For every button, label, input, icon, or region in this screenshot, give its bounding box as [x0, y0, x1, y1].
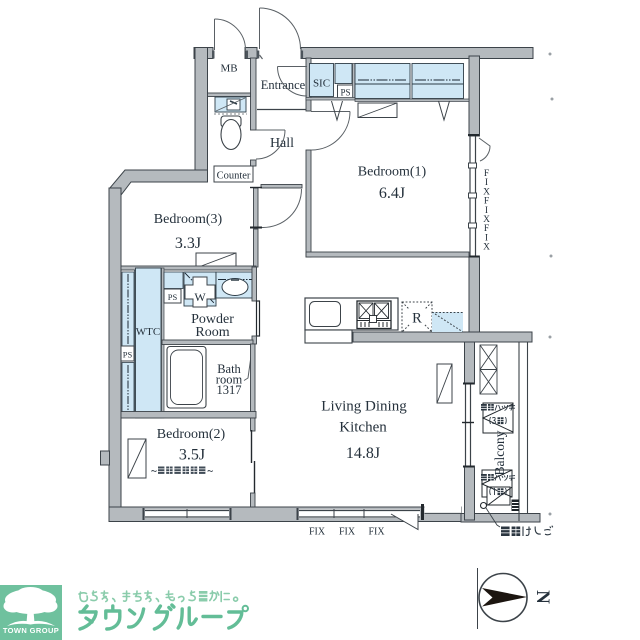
svg-text:MB: MB: [220, 63, 237, 75]
svg-text:Entrance: Entrance: [261, 78, 306, 92]
svg-text:WTC: WTC: [136, 326, 160, 338]
svg-text:Bedroom(3): Bedroom(3): [154, 212, 223, 227]
svg-text:Bedroom(2): Bedroom(2): [157, 427, 226, 442]
svg-text:FIX: FIX: [368, 527, 385, 538]
svg-text:14.8J: 14.8J: [346, 445, 380, 462]
svg-text:TOWN GROUP: TOWN GROUP: [3, 626, 59, 635]
svg-text:PS: PS: [168, 292, 178, 302]
svg-text:3.3J: 3.3J: [175, 235, 201, 252]
svg-text:R: R: [412, 311, 422, 327]
svg-text:1317: 1317: [217, 383, 242, 397]
svg-text:6.4J: 6.4J: [379, 185, 405, 202]
svg-text:Bedroom(1): Bedroom(1): [358, 165, 427, 180]
svg-text:Kitchen: Kitchen: [339, 420, 387, 436]
svg-text:FIX: FIX: [309, 527, 326, 538]
svg-text:N: N: [532, 590, 553, 604]
svg-text:FIX: FIX: [339, 527, 356, 538]
svg-text:Hall: Hall: [270, 136, 294, 151]
svg-text:SIC: SIC: [313, 78, 330, 90]
svg-text:PS: PS: [123, 350, 133, 360]
svg-text:Living Dining: Living Dining: [321, 399, 407, 415]
svg-text:PS: PS: [340, 88, 350, 98]
svg-text:Counter: Counter: [217, 171, 251, 182]
svg-text:Balcony: Balcony: [492, 430, 507, 475]
svg-text:Room: Room: [195, 325, 229, 340]
svg-text:W: W: [194, 290, 206, 304]
svg-text:3.5J: 3.5J: [179, 447, 205, 464]
